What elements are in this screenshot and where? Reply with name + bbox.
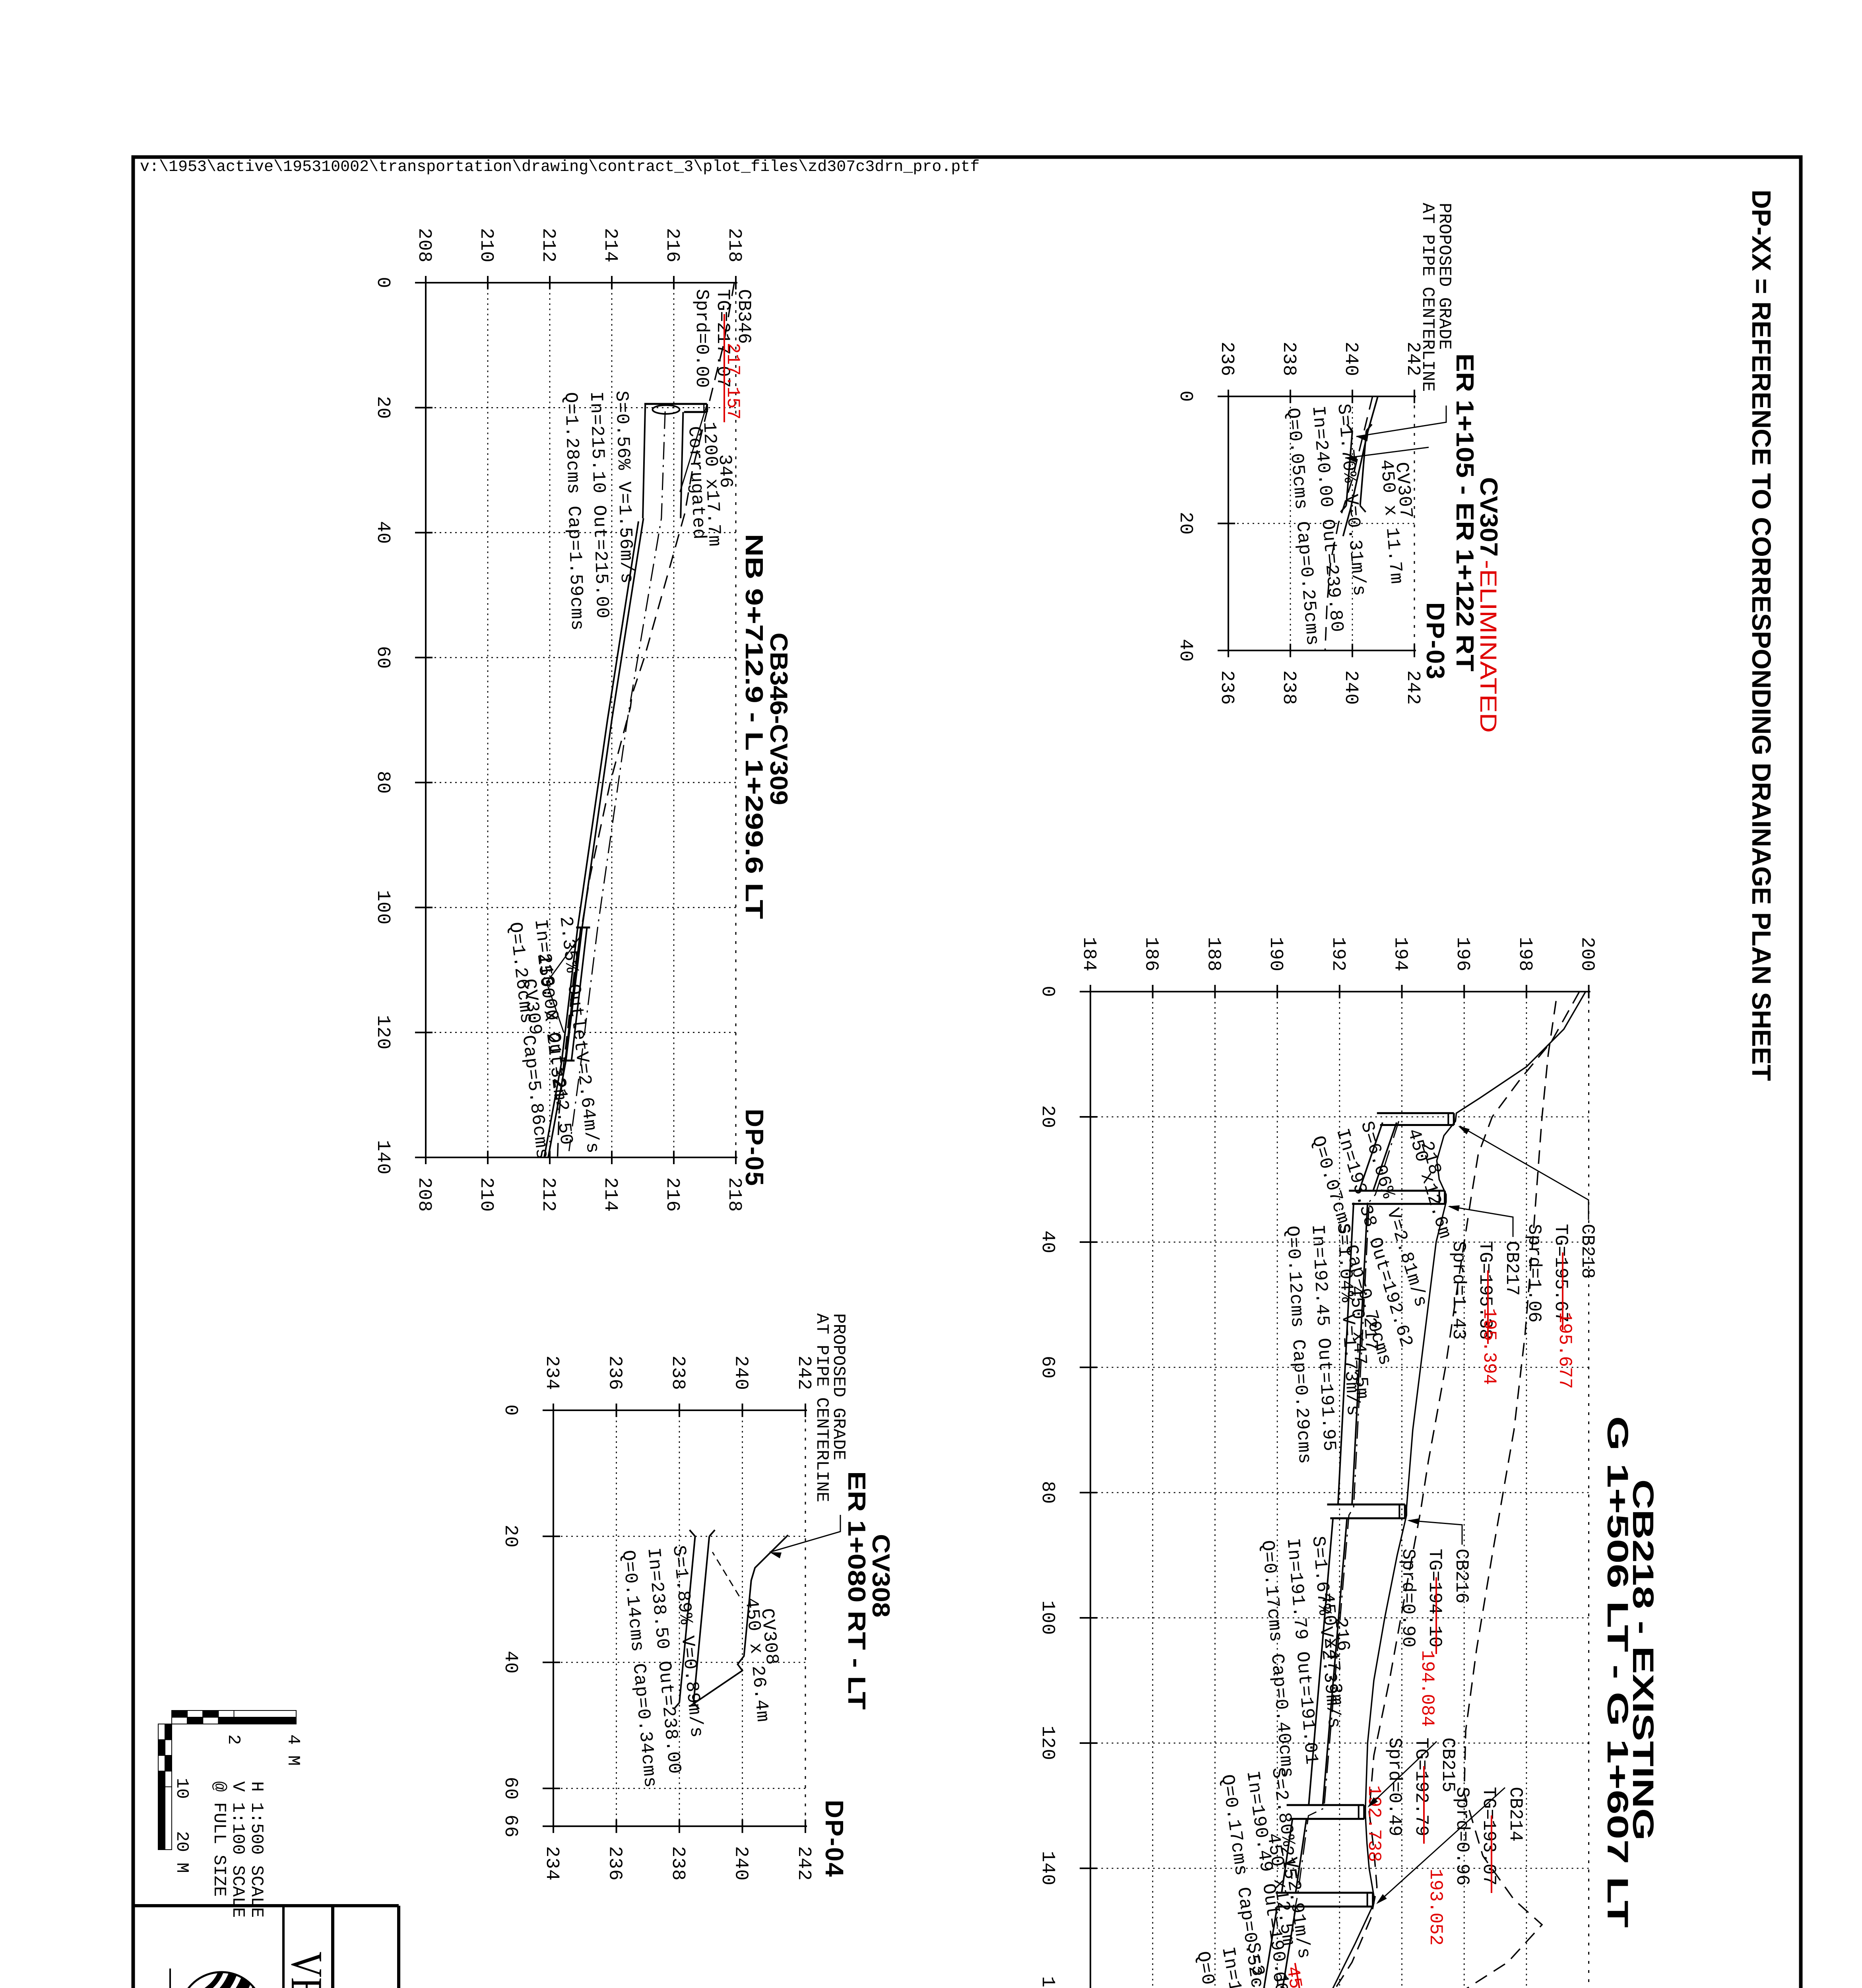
svg-text:20: 20: [1037, 1105, 1058, 1128]
svg-text:238: 238: [1278, 670, 1299, 705]
svg-text:100: 100: [372, 890, 393, 925]
svg-text:CV308: CV308: [867, 1534, 894, 1617]
svg-text:212: 212: [537, 1177, 559, 1212]
svg-text:236: 236: [604, 1355, 625, 1390]
svg-text:40: 40: [500, 1651, 521, 1674]
svg-text:CV307: CV307: [1475, 477, 1502, 557]
svg-text:CB218: CB218: [1577, 1224, 1598, 1279]
svg-text:192.738: 192.738: [1364, 1785, 1384, 1862]
svg-text:212: 212: [537, 228, 559, 263]
svg-text:240: 240: [1340, 670, 1361, 705]
svg-text:217.157: 217.157: [722, 343, 743, 419]
svg-text:80: 80: [1037, 1481, 1058, 1504]
svg-text:193.052: 193.052: [1425, 1869, 1446, 1945]
svg-text:0: 0: [1175, 390, 1196, 402]
svg-text:CB346: CB346: [733, 289, 754, 344]
svg-text:236: 236: [604, 1846, 625, 1881]
svg-text:238: 238: [1278, 342, 1299, 377]
svg-text:160: 160: [1037, 1976, 1058, 1988]
svg-text:195.394: 195.394: [1479, 1308, 1499, 1385]
svg-text:218: 218: [723, 228, 745, 263]
svg-text:60: 60: [372, 646, 393, 669]
svg-text:66: 66: [500, 1815, 521, 1838]
svg-text:ER 1+080 RT - LT: ER 1+080 RT - LT: [843, 1471, 870, 1710]
svg-text:120: 120: [372, 1015, 393, 1050]
svg-text:-ELIMINATED: -ELIMINATED: [1475, 560, 1501, 733]
svg-text:0: 0: [1037, 986, 1058, 997]
svg-text:TG=194.10: TG=194.10: [1424, 1549, 1445, 1647]
svg-text:AT PIPE CENTERLINE: AT PIPE CENTERLINE: [812, 1313, 832, 1502]
svg-text:Sprd=1.06: Sprd=1.06: [1524, 1224, 1544, 1322]
svg-text:240: 240: [1340, 342, 1361, 377]
svg-text:120: 120: [1037, 1726, 1058, 1761]
svg-text:60: 60: [500, 1777, 521, 1800]
svg-text:ER 1+105 - ER 1+122 RT: ER 1+105 - ER 1+122 RT: [1451, 353, 1478, 672]
svg-text:Sprd=0.96: Sprd=0.96: [1452, 1787, 1472, 1885]
svg-text:DP-05: DP-05: [740, 1109, 769, 1187]
svg-text:CB215: CB215: [1437, 1738, 1458, 1792]
svg-text:140: 140: [372, 1140, 393, 1175]
svg-text:4 M: 4 M: [283, 1734, 303, 1766]
svg-text:242: 242: [1402, 670, 1423, 705]
svg-text:CB214: CB214: [1505, 1787, 1526, 1842]
svg-text:AT PIPE CENTERLINE: AT PIPE CENTERLINE: [1418, 203, 1437, 392]
svg-text:H 1:500 SCALE: H 1:500 SCALE: [246, 1781, 266, 1918]
svg-text:242: 242: [793, 1846, 814, 1881]
svg-text:DP-03: DP-03: [1421, 602, 1450, 680]
svg-text:194.084: 194.084: [1417, 1650, 1437, 1727]
svg-text:DP-04: DP-04: [820, 1800, 849, 1878]
svg-text:DP-XX = REFERENCE TO CORRE: DP-XX = REFERENCE TO CORRESPONDING DRAIN…: [1746, 190, 1776, 1081]
svg-text:80: 80: [372, 771, 393, 794]
svg-text:240: 240: [730, 1355, 751, 1390]
svg-text:216: 216: [661, 228, 683, 263]
svg-text:238: 238: [667, 1846, 688, 1881]
svg-text:192: 192: [1327, 937, 1348, 972]
svg-text:20: 20: [1175, 512, 1196, 535]
svg-text:210: 210: [475, 228, 497, 263]
svg-text:190: 190: [1265, 937, 1286, 972]
svg-text:40: 40: [1175, 639, 1196, 662]
svg-text:210: 210: [475, 1177, 497, 1212]
svg-text:10: 10: [172, 1778, 192, 1799]
svg-text:0: 0: [500, 1404, 521, 1416]
svg-text:234: 234: [541, 1846, 562, 1881]
svg-text:214: 214: [599, 228, 621, 263]
svg-text:CB217: CB217: [1501, 1241, 1522, 1296]
svg-text:238: 238: [667, 1355, 688, 1390]
svg-text:216: 216: [661, 1177, 683, 1212]
svg-text:VERMONT AGENCY OF TRANSPORTATI: VERMONT AGENCY OF TRANSPORTATION: [282, 1952, 331, 1988]
svg-text:Sprd=0.90: Sprd=0.90: [1398, 1549, 1418, 1647]
svg-text:242: 242: [793, 1355, 814, 1390]
svg-text:240: 240: [730, 1846, 751, 1881]
svg-text:20: 20: [500, 1525, 521, 1548]
svg-text:236: 236: [1216, 342, 1237, 377]
svg-text:195.677: 195.677: [1554, 1312, 1575, 1389]
svg-text:20 M: 20 M: [172, 1831, 192, 1873]
svg-text:V 1:100 SCALE: V 1:100 SCALE: [228, 1781, 248, 1918]
svg-text:Sprd=0.00: Sprd=0.00: [691, 289, 712, 388]
svg-text:2: 2: [223, 1734, 243, 1745]
svg-text:214: 214: [599, 1177, 621, 1212]
svg-text:NB 9+712.9 - L 1+299.6 LT: NB 9+712.9 - L 1+299.6 LT: [740, 534, 768, 919]
svg-text:TG=192.79: TG=192.79: [1411, 1738, 1431, 1836]
svg-text:G 1+506 LT - G 1+607 LT: G 1+506 LT - G 1+607 LT: [1601, 1416, 1634, 1928]
svg-text:208: 208: [413, 1177, 434, 1212]
svg-text:Sprd=0.49: Sprd=0.49: [1384, 1738, 1405, 1836]
svg-text:60: 60: [1037, 1356, 1058, 1379]
svg-text:194: 194: [1390, 937, 1411, 972]
svg-text:v:\1953\active\195310002\trans: v:\1953\active\195310002\transportation\…: [140, 158, 979, 176]
svg-text:Sprd=1.43: Sprd=1.43: [1448, 1241, 1469, 1340]
svg-text:@ FULL SIZE: @ FULL SIZE: [209, 1781, 229, 1897]
svg-text:40: 40: [1037, 1231, 1058, 1254]
svg-text:CB216: CB216: [1451, 1549, 1472, 1604]
svg-text:200: 200: [1577, 937, 1598, 972]
svg-text:196: 196: [1452, 937, 1473, 972]
svg-text:40: 40: [372, 521, 393, 544]
svg-text:CB346-CV309: CB346-CV309: [765, 633, 792, 805]
svg-text:234: 234: [541, 1355, 562, 1390]
svg-text:0: 0: [372, 277, 393, 288]
svg-text:184: 184: [1078, 937, 1099, 972]
svg-text:208: 208: [413, 228, 434, 263]
svg-text:20: 20: [372, 396, 393, 419]
svg-text:236: 236: [1216, 670, 1237, 705]
svg-text:186: 186: [1140, 937, 1162, 972]
svg-text:140: 140: [1037, 1851, 1058, 1886]
svg-text:TG=195.67: TG=195.67: [1550, 1224, 1571, 1322]
svg-text:100: 100: [1037, 1600, 1058, 1635]
svg-text:198: 198: [1514, 937, 1535, 972]
svg-text:188: 188: [1203, 937, 1224, 972]
